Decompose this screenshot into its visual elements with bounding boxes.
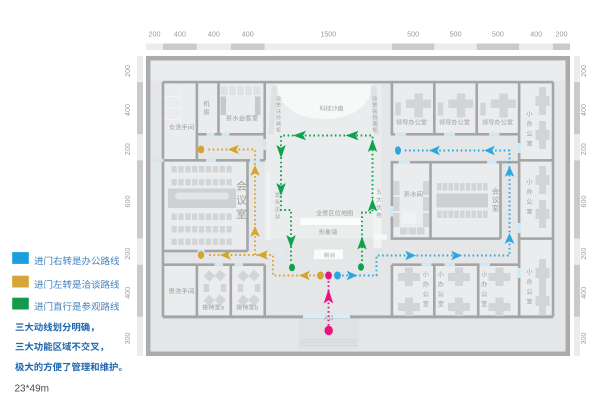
svg-text:400: 400	[579, 287, 588, 299]
svg-text:400: 400	[123, 287, 132, 299]
svg-text:500: 500	[407, 30, 419, 39]
svg-text:400: 400	[530, 30, 542, 39]
svg-text:200: 200	[579, 143, 588, 155]
svg-text:200: 200	[556, 30, 568, 39]
svg-text:400: 400	[242, 30, 254, 39]
svg-text:500: 500	[450, 30, 462, 39]
svg-text:300: 300	[123, 332, 132, 344]
svg-text:200: 200	[123, 248, 132, 260]
svg-text:600: 600	[123, 195, 132, 207]
svg-text:23*49m: 23*49m	[15, 384, 49, 395]
svg-text:200: 200	[123, 65, 132, 77]
svg-text:600: 600	[579, 195, 588, 207]
svg-text:400: 400	[208, 30, 220, 39]
svg-text:500: 500	[492, 30, 504, 39]
svg-text:400: 400	[174, 30, 186, 39]
svg-text:300: 300	[579, 332, 588, 344]
svg-text:200: 200	[579, 248, 588, 260]
svg-text:400: 400	[123, 104, 132, 116]
svg-text:200: 200	[579, 65, 588, 77]
svg-text:200: 200	[148, 30, 160, 39]
svg-text:400: 400	[579, 104, 588, 116]
svg-text:1500: 1500	[320, 30, 336, 39]
svg-text:200: 200	[123, 143, 132, 155]
